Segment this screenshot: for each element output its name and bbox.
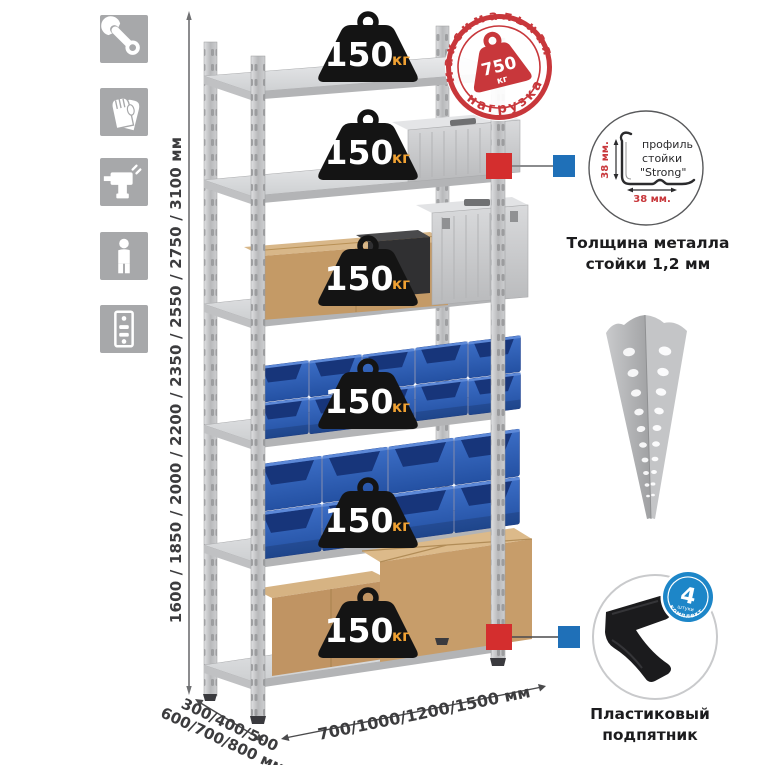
profile-callout-connector <box>486 153 575 179</box>
profile-label-2: стойки <box>642 152 682 165</box>
red-marker-top <box>486 153 512 179</box>
red-marker-bottom <box>486 624 512 650</box>
profile-dim-vertical: 38 мм. <box>600 141 611 179</box>
product-infographic: 150 кг 150 кг 150 кг 150 кг <box>0 0 765 765</box>
height-dimension-line <box>186 11 191 695</box>
metal-thickness-line2: стойки 1,2 мм <box>560 254 736 275</box>
load-value: 150 <box>325 382 394 421</box>
load-value: 150 <box>325 501 394 540</box>
plastic-foot-caption: Пластиковый подпятник <box>560 704 740 746</box>
aluminum-case-shelf3 <box>416 197 528 305</box>
foot-callout-connector <box>486 624 580 650</box>
load-unit: кг <box>392 627 410 645</box>
profile-detail: 38 мм. 38 мм. профиль стойки "Strong" <box>589 111 703 225</box>
blue-marker-bottom <box>558 626 580 648</box>
load-value: 150 <box>325 35 394 74</box>
profile-label-1: профиль <box>642 138 693 151</box>
height-dimension-label: 1600 / 1850 / 2000 / 2200 / 2350 / 2550 … <box>167 137 185 623</box>
load-unit: кг <box>392 51 410 69</box>
corner-post-photo <box>606 315 687 519</box>
load-unit: кг <box>392 517 410 535</box>
plastic-foot-detail: 4 штуки в комплекте <box>593 564 721 699</box>
load-unit: кг <box>392 398 410 416</box>
shelving-diagram: 150 кг 150 кг 150 кг 150 кг <box>0 0 765 765</box>
load-unit: кг <box>392 149 410 167</box>
metal-thickness-caption: Толщина металла стойки 1,2 мм <box>560 233 736 275</box>
plastic-foot-line2: подпятник <box>560 725 740 746</box>
load-value: 150 <box>325 611 394 650</box>
blue-marker-top <box>553 155 575 177</box>
metal-thickness-line1: Толщина металла <box>560 233 736 254</box>
load-value: 150 <box>325 259 394 298</box>
load-value: 150 <box>325 133 394 172</box>
load-unit: кг <box>392 275 410 293</box>
load-badge: 150 кг <box>318 14 418 82</box>
profile-label-3: "Strong" <box>640 166 686 179</box>
profile-dim-horizontal: 38 мм. <box>633 194 671 205</box>
plastic-foot-line1: Пластиковый <box>560 704 740 725</box>
